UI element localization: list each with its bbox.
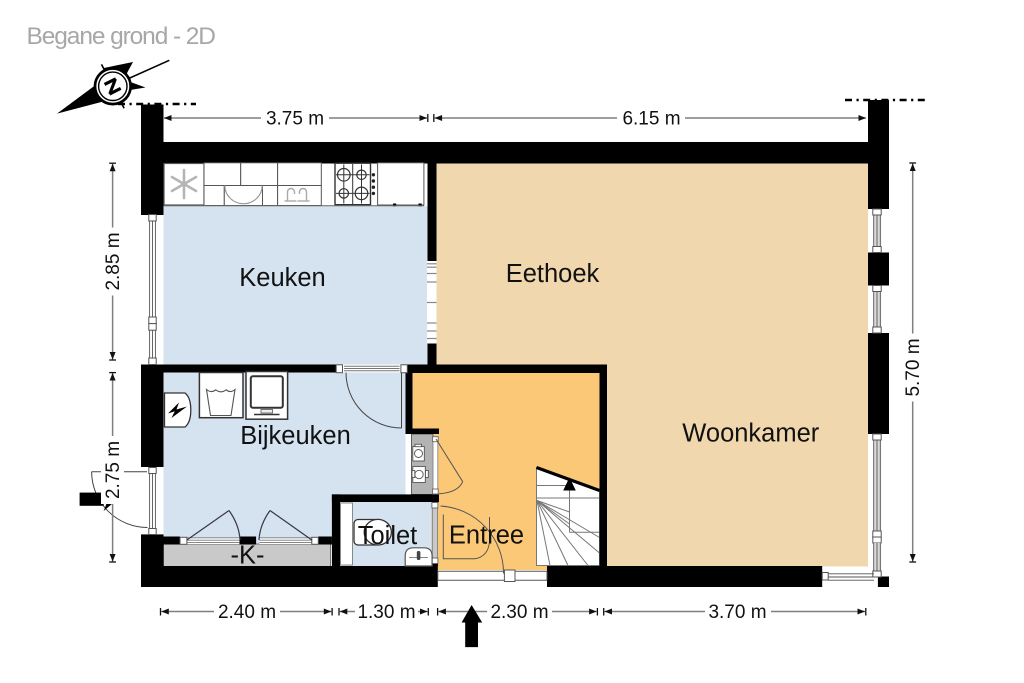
svg-text:Keuken: Keuken [239, 264, 326, 292]
svg-text:Toilet: Toilet [358, 522, 418, 550]
svg-text:3.75 m: 3.75 m [266, 109, 324, 130]
svg-text:6.15 m: 6.15 m [622, 109, 680, 130]
svg-text:5.70 m: 5.70 m [903, 338, 924, 396]
svg-text:2.85 m: 2.85 m [103, 232, 124, 290]
svg-text:2.75 m: 2.75 m [103, 441, 124, 499]
svg-text:Entree: Entree [449, 522, 524, 550]
svg-text:-K-: -K- [231, 542, 265, 570]
svg-text:1.30 m: 1.30 m [357, 602, 415, 623]
svg-text:2.40 m: 2.40 m [218, 602, 276, 623]
svg-text:Bijkeuken: Bijkeuken [240, 422, 351, 450]
svg-text:Woonkamer: Woonkamer [682, 420, 820, 448]
svg-text:Eethoek: Eethoek [506, 260, 600, 288]
svg-text:2.30 m: 2.30 m [490, 602, 548, 623]
svg-text:Begane grond - 2D: Begane grond - 2D [27, 23, 216, 50]
svg-text:3.70 m: 3.70 m [708, 602, 766, 623]
